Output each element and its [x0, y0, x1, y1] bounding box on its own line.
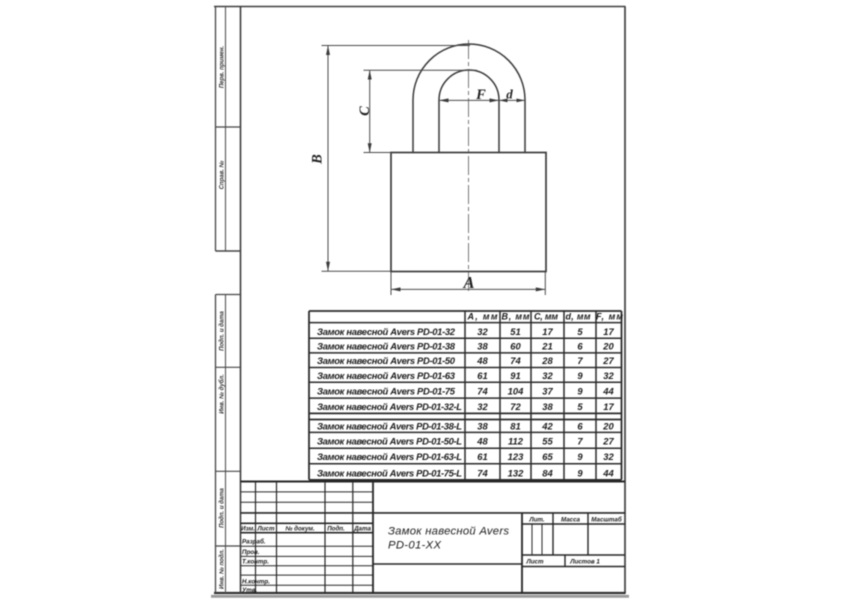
svg-text:74: 74: [477, 467, 488, 478]
svg-text:6: 6: [577, 420, 583, 431]
svg-text:81: 81: [510, 420, 520, 431]
svg-text:Н.контр.: Н.контр.: [242, 579, 270, 586]
svg-text:20: 20: [602, 420, 614, 431]
svg-text:d, мм: d, мм: [566, 312, 591, 322]
svg-text:38: 38: [477, 340, 488, 351]
svg-text:6: 6: [577, 340, 583, 351]
svg-text:Лист: Лист: [257, 526, 275, 533]
svg-text:5: 5: [577, 326, 583, 337]
svg-text:21: 21: [541, 340, 552, 351]
svg-text:123: 123: [508, 451, 524, 462]
svg-text:48: 48: [476, 355, 488, 366]
svg-text:Т.контр.: Т.контр.: [242, 559, 269, 566]
svg-text:Инв. № подл.: Инв. № подл.: [218, 549, 225, 589]
svg-text:Подп. и дата: Подп. и дата: [219, 310, 225, 350]
svg-text:104: 104: [508, 386, 524, 397]
svg-text:Перв. примен.: Перв. примен.: [219, 46, 225, 89]
svg-text:Замок навесной Avers PD-01-32: Замок навесной Avers PD-01-32: [317, 326, 456, 337]
svg-text:Замок навесной Avers PD-01-32-: Замок навесной Avers PD-01-32-L: [317, 401, 462, 412]
svg-text:20: 20: [602, 340, 614, 351]
svg-text:Изм.: Изм.: [241, 526, 255, 533]
svg-text:Масштаб: Масштаб: [591, 517, 622, 524]
svg-text:42: 42: [541, 420, 553, 431]
svg-text:Листов 1: Листов 1: [569, 559, 600, 566]
svg-text:Замок навесной Avers PD-01-50: Замок навесной Avers PD-01-50: [317, 355, 456, 366]
svg-text:37: 37: [542, 386, 553, 397]
svg-text:32: 32: [603, 370, 614, 381]
svg-text:74: 74: [477, 386, 488, 397]
svg-text:Замок навесной Avers PD-01-38-: Замок навесной Avers PD-01-38-L: [317, 420, 462, 431]
svg-text:65: 65: [542, 451, 553, 462]
svg-text:Замок навесной Avers PD-01-50-: Замок навесной Avers PD-01-50-L: [317, 436, 462, 447]
svg-text:60: 60: [510, 340, 521, 351]
svg-text:Масса: Масса: [561, 517, 581, 524]
svg-text:Утв.: Утв.: [242, 587, 257, 594]
svg-text:B: B: [310, 154, 326, 165]
svg-text:Замок навесной Avers PD-01-38: Замок навесной Avers PD-01-38: [317, 340, 456, 351]
svg-text:Замок навесной Avers PD-01-63: Замок навесной Avers PD-01-63: [317, 370, 456, 381]
svg-text:17: 17: [603, 401, 614, 412]
svg-text:44: 44: [602, 467, 614, 478]
svg-text:Подп. и дата: Подп. и дата: [219, 487, 225, 527]
svg-text:9: 9: [577, 451, 583, 462]
svg-text:№ докум.: № докум.: [285, 526, 315, 533]
svg-text:Подп.: Подп.: [327, 526, 345, 533]
svg-text:72: 72: [510, 401, 521, 412]
svg-text:Замок навесной Avers PD-01-75: Замок навесной Avers PD-01-75: [317, 386, 456, 397]
svg-text:C, мм: C, мм: [534, 312, 558, 322]
svg-text:32: 32: [477, 326, 488, 337]
svg-text:7: 7: [577, 355, 583, 366]
svg-text:Инв. № дубл.: Инв. № дубл.: [218, 374, 225, 414]
svg-text:F, мм: F, мм: [596, 312, 623, 322]
svg-text:7: 7: [577, 436, 583, 447]
svg-text:9: 9: [577, 386, 583, 397]
svg-text:17: 17: [542, 326, 553, 337]
svg-text:Лист: Лист: [526, 559, 544, 566]
svg-text:112: 112: [508, 436, 524, 447]
svg-text:B, мм: B, мм: [502, 312, 530, 322]
svg-text:51: 51: [510, 326, 520, 337]
svg-text:55: 55: [542, 436, 553, 447]
svg-text:17: 17: [603, 326, 614, 337]
svg-text:Замок навесной Avers PD-01-75-: Замок навесной Avers PD-01-75-L: [317, 467, 462, 478]
svg-text:74: 74: [510, 355, 521, 366]
svg-text:44: 44: [602, 386, 614, 397]
svg-text:A, мм: A, мм: [467, 312, 498, 322]
svg-text:32: 32: [603, 451, 614, 462]
svg-text:48: 48: [476, 436, 488, 447]
svg-text:Разраб.: Разраб.: [242, 539, 266, 546]
svg-text:Лит.: Лит.: [528, 517, 544, 524]
svg-text:PD-01-XX: PD-01-XX: [388, 540, 441, 552]
svg-text:38: 38: [477, 420, 488, 431]
svg-text:d: d: [506, 87, 513, 102]
svg-text:9: 9: [577, 370, 583, 381]
svg-text:32: 32: [477, 401, 488, 412]
svg-text:F: F: [475, 87, 486, 103]
svg-text:91: 91: [510, 370, 520, 381]
svg-text:84: 84: [542, 467, 553, 478]
svg-text:38: 38: [542, 401, 553, 412]
svg-text:Пров.: Пров.: [242, 549, 260, 556]
svg-text:27: 27: [602, 355, 614, 366]
svg-text:28: 28: [541, 355, 553, 366]
svg-text:61: 61: [477, 370, 487, 381]
svg-text:Дата: Дата: [353, 526, 371, 533]
svg-text:Замок навесной Avers: Замок навесной Avers: [388, 526, 509, 538]
svg-text:61: 61: [477, 451, 487, 462]
svg-text:32: 32: [542, 370, 553, 381]
svg-text:5: 5: [577, 401, 583, 412]
svg-text:Замок навесной Avers PD-01-63-: Замок навесной Avers PD-01-63-L: [317, 451, 462, 462]
svg-text:27: 27: [602, 436, 614, 447]
svg-text:132: 132: [508, 467, 524, 478]
svg-text:9: 9: [577, 467, 583, 478]
svg-text:C: C: [357, 106, 373, 116]
svg-text:A: A: [462, 273, 474, 292]
svg-text:Справ. №: Справ. №: [218, 160, 225, 189]
